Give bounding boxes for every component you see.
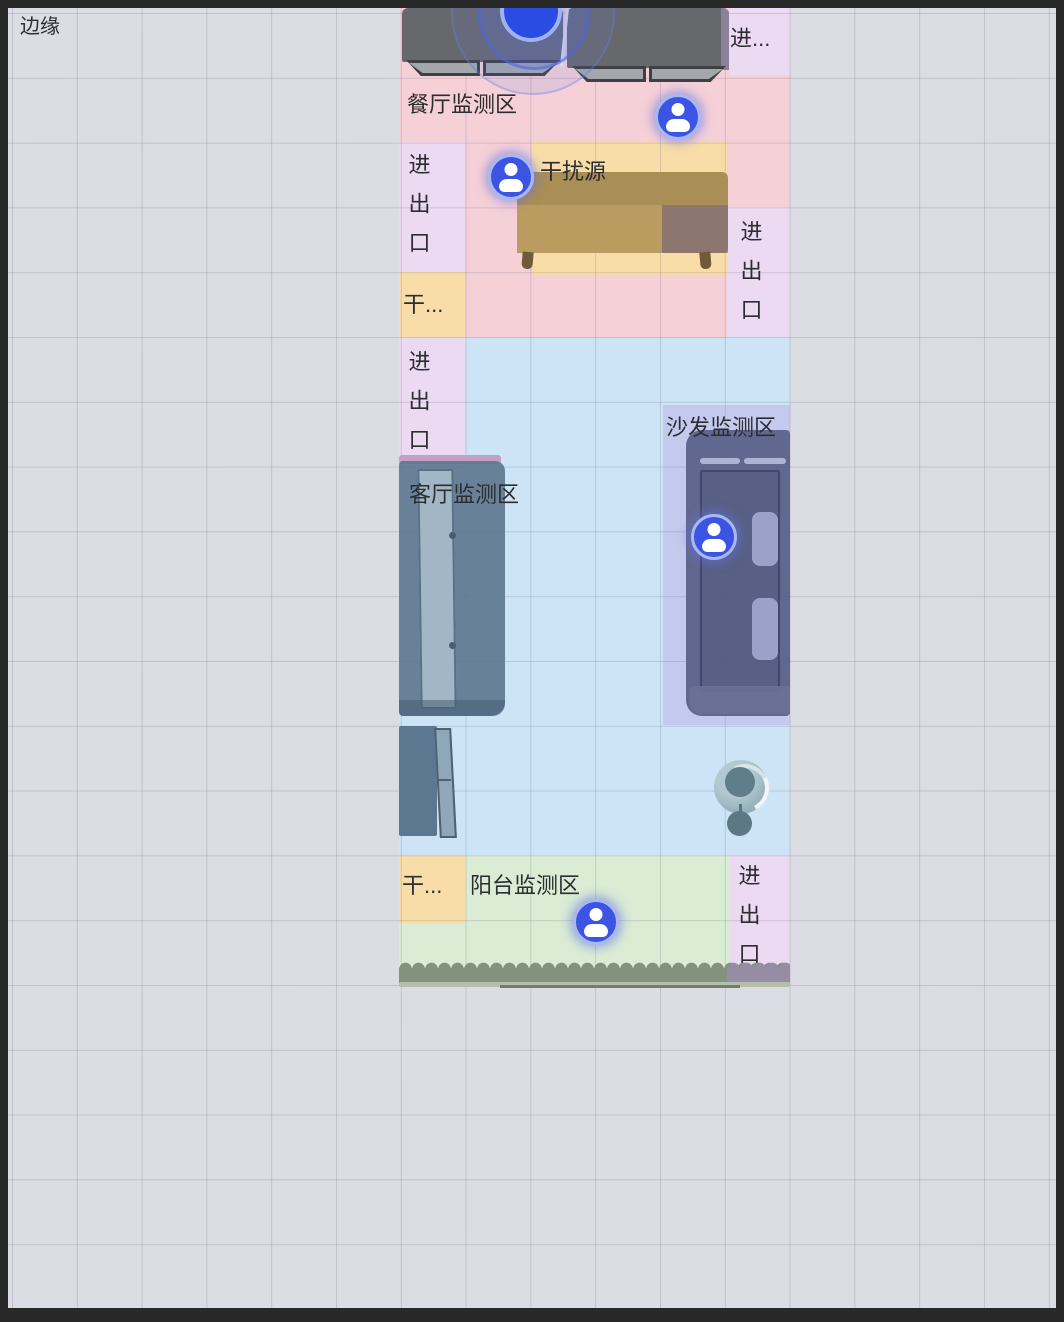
living-sofa-cushion-seam bbox=[700, 458, 740, 464]
person-icon bbox=[488, 154, 534, 200]
small-cabinet[interactable] bbox=[399, 726, 437, 836]
frame-top bbox=[0, 0, 1064, 8]
dining-sofa-armrest bbox=[662, 205, 728, 253]
person-icon bbox=[655, 94, 701, 140]
zone-label-entrance-left-1: 进出口 bbox=[404, 153, 432, 270]
frame-left bbox=[0, 0, 8, 1322]
edge-label: 边缘 bbox=[20, 15, 60, 40]
curtain-underline-dark bbox=[500, 985, 740, 988]
zone-label-interference-truncated: 干... bbox=[403, 291, 443, 319]
dining-sofa-leg bbox=[699, 252, 711, 270]
person-icon bbox=[573, 899, 619, 945]
zone-label-entrance-bottom-right: 进出口 bbox=[734, 864, 762, 981]
zone-label-entrance-right-1: 进出口 bbox=[736, 220, 764, 337]
wardrobe-bottom-lip bbox=[399, 700, 505, 716]
wardrobe-handle bbox=[449, 532, 456, 539]
zone-label-sofa: 沙发监测区 bbox=[666, 408, 778, 449]
zone-label-interference: 干扰源 bbox=[540, 158, 606, 186]
dining-sofa-leg bbox=[521, 252, 533, 270]
zone-label-balcony: 阳台监测区 bbox=[470, 872, 580, 900]
zone-label-interference-truncated-2: 干... bbox=[402, 872, 442, 900]
floorplan-canvas: 边缘 进... 餐厅监测区 进出口 干扰源 干... 进出口 进出口 沙发监测区… bbox=[0, 0, 1064, 1322]
frame-right bbox=[1056, 0, 1064, 1322]
wardrobe-handle bbox=[449, 642, 456, 649]
living-sofa-pillow bbox=[752, 512, 778, 566]
living-sofa-front-lip bbox=[690, 686, 790, 714]
person-icon bbox=[691, 514, 737, 560]
fan-icon[interactable] bbox=[714, 760, 768, 814]
fan-motor bbox=[725, 767, 755, 797]
zone-label-dining: 餐厅监测区 bbox=[407, 91, 517, 119]
zone-label-entrance-left-2: 进出口 bbox=[404, 350, 432, 467]
living-sofa-cushion-seam bbox=[744, 458, 786, 464]
zone-label-entrance-truncated: 进... bbox=[730, 25, 770, 53]
fan-base bbox=[727, 811, 752, 836]
zone-label-living: 客厅监测区 bbox=[409, 481, 519, 509]
cabinet-right-edge bbox=[721, 8, 729, 70]
small-cabinet-divider bbox=[438, 779, 451, 781]
living-sofa-pillow bbox=[752, 598, 778, 660]
frame-bottom bbox=[0, 1308, 1064, 1322]
